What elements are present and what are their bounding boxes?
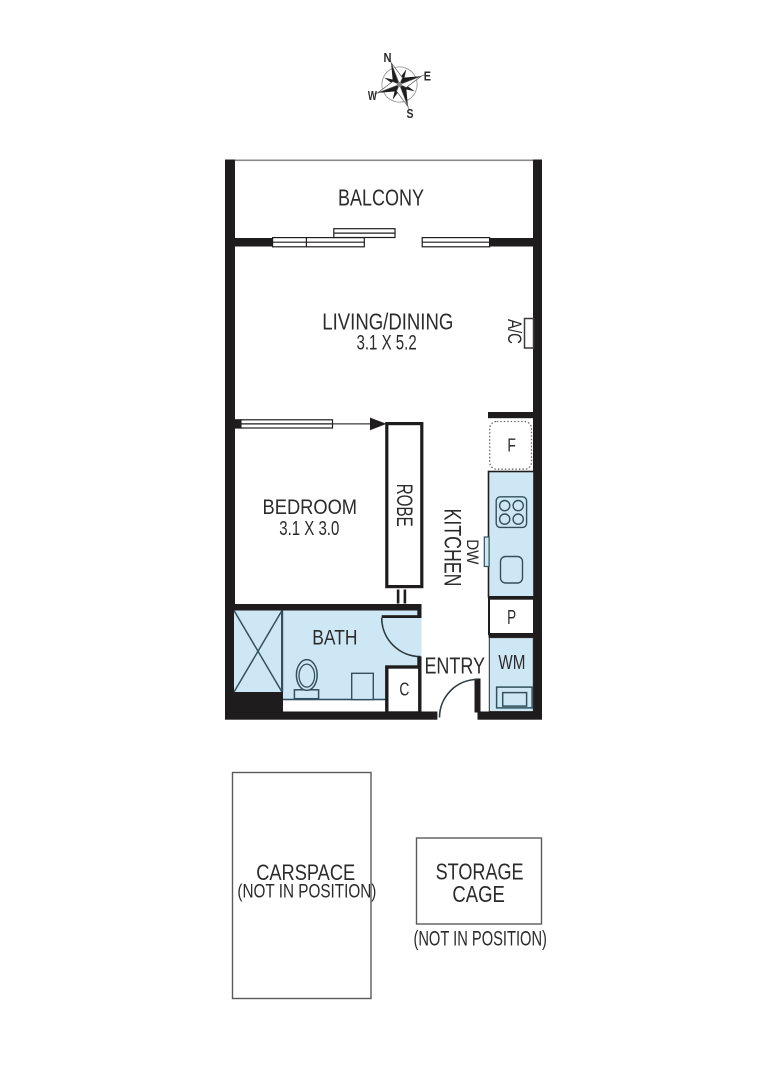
svg-text:C: C: [399, 679, 409, 699]
svg-text:W: W: [368, 88, 378, 103]
svg-text:F: F: [507, 435, 516, 456]
svg-text:(NOT IN POSITION): (NOT IN POSITION): [413, 928, 547, 951]
svg-text:S: S: [407, 106, 414, 121]
svg-text:A/C: A/C: [503, 319, 525, 344]
svg-text:3.1 X 3.0: 3.1 X 3.0: [279, 518, 339, 540]
svg-text:E: E: [424, 69, 431, 84]
svg-text:P: P: [507, 607, 516, 629]
svg-text:WM: WM: [498, 652, 525, 674]
svg-text:ENTRY: ENTRY: [424, 652, 485, 678]
svg-text:ROBE: ROBE: [392, 484, 417, 527]
svg-text:KITCHEN: KITCHEN: [439, 509, 466, 587]
svg-text:N: N: [384, 50, 392, 65]
svg-text:BEDROOM: BEDROOM: [263, 495, 358, 519]
svg-text:BALCONY: BALCONY: [338, 185, 424, 211]
svg-text:CAGE: CAGE: [452, 881, 505, 907]
svg-text:(NOT IN POSITION): (NOT IN POSITION): [237, 882, 376, 903]
svg-text:3.1 X 5.2: 3.1 X 5.2: [357, 332, 417, 355]
svg-text:BATH: BATH: [312, 625, 357, 649]
